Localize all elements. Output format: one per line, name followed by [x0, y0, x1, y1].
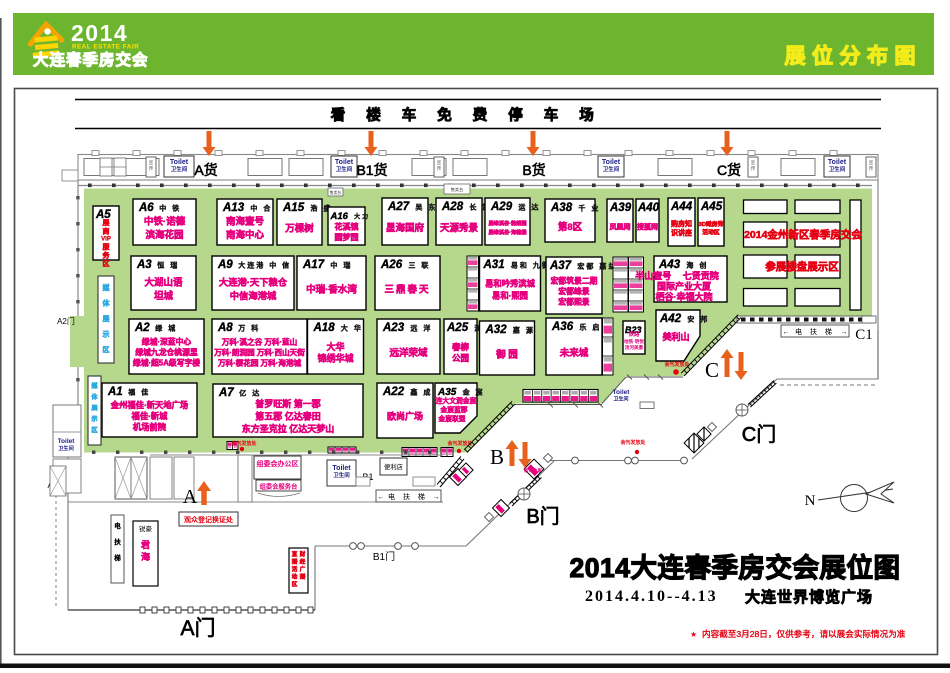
svg-text:展: 展 — [102, 218, 111, 227]
svg-text:会刊发放处: 会刊发放处 — [446, 440, 473, 447]
svg-text:卫生间: 卫生间 — [336, 165, 353, 173]
svg-text:区: 区 — [292, 580, 298, 588]
svg-text:运 达: 运 达 — [518, 203, 540, 212]
svg-text:A45: A45 — [700, 201, 723, 213]
svg-text:金宸蓝郡: 金宸蓝郡 — [439, 405, 467, 414]
svg-text:A: A — [183, 486, 198, 508]
svg-text:2014.4.10--4.13: 2014.4.10--4.13 — [585, 588, 718, 605]
svg-text:A22: A22 — [382, 386, 405, 398]
svg-text:Toilet: Toilet — [335, 159, 354, 166]
svg-text:广: 广 — [300, 565, 306, 573]
svg-text:A13: A13 — [222, 202, 245, 214]
svg-text:A1: A1 — [107, 386, 123, 398]
svg-text:金宸联盟: 金宸联盟 — [437, 414, 465, 423]
svg-text:中 合: 中 合 — [250, 204, 272, 213]
svg-text:大连港 中 信: 大连港 中 信 — [238, 261, 291, 270]
svg-text:Toilet: Toilet — [602, 159, 621, 166]
svg-text:示: 示 — [102, 331, 110, 339]
svg-text:宏都 嘉益: 宏都 嘉益 — [577, 262, 617, 271]
svg-text:万科·樱花园 万科·海港城: 万科·樱花园 万科·海港城 — [217, 358, 302, 368]
svg-text:会刊发放处: 会刊发放处 — [230, 440, 257, 447]
svg-text:→: → — [433, 494, 440, 501]
svg-text:活: 活 — [292, 565, 298, 573]
svg-text:卫生间: 卫生间 — [171, 165, 188, 173]
svg-text:南海壹号: 南海壹号 — [226, 216, 265, 228]
svg-text:B: B — [490, 445, 504, 469]
svg-text:大连春季房交会: 大连春季房交会 — [33, 50, 149, 69]
svg-text:卫生间: 卫生间 — [333, 471, 350, 479]
svg-text:2014: 2014 — [71, 20, 128, 46]
svg-text:三鼎春天: 三鼎春天 — [384, 283, 430, 295]
svg-text:A2: A2 — [134, 322, 150, 334]
svg-text:嘉 源: 嘉 源 — [512, 326, 535, 335]
svg-text:B1货: B1货 — [356, 162, 387, 178]
svg-text:A25: A25 — [446, 322, 469, 334]
svg-text:中 铁: 中 铁 — [159, 204, 181, 213]
svg-text:凤凰网: 凤凰网 — [610, 222, 631, 231]
svg-text:区: 区 — [103, 260, 110, 268]
svg-text:锦绣华城: 锦绣华城 — [317, 352, 353, 363]
svg-text:中 瑞: 中 瑞 — [330, 261, 352, 270]
svg-text:A44: A44 — [670, 201, 693, 213]
svg-text:普罗旺斯 第一郡: 普罗旺斯 第一郡 — [255, 398, 321, 409]
svg-text:绿城·超5A级写字楼: 绿城·超5A级写字楼 — [133, 358, 200, 368]
svg-text:2014大连春季房交会展位图: 2014大连春季房交会展位图 — [570, 553, 901, 583]
svg-text:绿城九龙仓桃源里: 绿城九龙仓桃源里 — [135, 347, 198, 357]
svg-text:万 科: 万 科 — [237, 324, 260, 333]
svg-text:媒: 媒 — [91, 382, 98, 390]
svg-text:N: N — [805, 493, 816, 509]
svg-text:区: 区 — [91, 426, 98, 434]
svg-text:Toilet: Toilet — [613, 389, 631, 396]
svg-text:君: 君 — [141, 540, 150, 550]
svg-text:福佳·新城: 福佳·新城 — [131, 411, 169, 421]
svg-text:A货: A货 — [194, 162, 217, 178]
svg-text:楼: 楼 — [366, 106, 381, 124]
svg-text:Toilet: Toilet — [332, 465, 351, 472]
svg-text:三 联: 三 联 — [408, 261, 430, 270]
svg-text:车: 车 — [544, 106, 559, 124]
svg-text:传: 传 — [751, 165, 756, 172]
svg-text:美利山: 美利山 — [662, 331, 689, 342]
svg-text:汤河美景: 汤河美景 — [625, 344, 644, 351]
svg-text:购房知: 购房知 — [671, 219, 692, 228]
svg-text:万科·溪之谷 万科·蓝山: 万科·溪之谷 万科·蓝山 — [221, 337, 298, 347]
svg-text:★: ★ — [690, 630, 697, 639]
svg-text:卫生间: 卫生间 — [58, 444, 74, 452]
svg-text:宏都熙景: 宏都熙景 — [558, 297, 589, 307]
svg-text:传: 传 — [869, 165, 874, 172]
svg-text:售卖台: 售卖台 — [330, 190, 342, 195]
svg-text:A36: A36 — [551, 321, 574, 333]
svg-text:便利店: 便利店 — [384, 462, 403, 471]
svg-text:会刊发放处: 会刊发放处 — [663, 361, 690, 368]
svg-text:宏都峰景: 宏都峰景 — [558, 286, 589, 296]
svg-text:宣: 宣 — [869, 159, 874, 166]
svg-text:A6: A6 — [138, 202, 154, 214]
svg-text:金 宸: 金 宸 — [462, 388, 485, 397]
svg-text:中铁·诺德: 中铁·诺德 — [144, 216, 186, 228]
svg-text:财: 财 — [300, 550, 306, 558]
svg-text:A17: A17 — [302, 259, 325, 271]
svg-text:参展楼盘展示区: 参展楼盘展示区 — [765, 260, 839, 273]
svg-text:吴 东: 吴 东 — [415, 203, 437, 212]
svg-text:卫生间: 卫生间 — [829, 165, 846, 173]
svg-text:活动区: 活动区 — [702, 228, 720, 236]
svg-text:坦城: 坦城 — [154, 290, 174, 302]
svg-text:搜狐网: 搜狐网 — [637, 222, 658, 231]
svg-text:鑫 成: 鑫 成 — [409, 388, 432, 397]
svg-text:A门: A门 — [180, 617, 215, 640]
svg-text:A16: A16 — [330, 211, 349, 222]
svg-text:地铁·明悦: 地铁·明悦 — [624, 338, 644, 345]
svg-text:A7: A7 — [218, 387, 234, 399]
svg-text:千 业: 千 业 — [578, 204, 600, 213]
svg-text:扶: 扶 — [114, 537, 121, 546]
svg-text:展位分布图: 展位分布图 — [785, 44, 923, 68]
svg-text:大 华: 大 华 — [341, 324, 363, 333]
svg-text:春柳: 春柳 — [451, 342, 470, 352]
svg-text:播: 播 — [300, 573, 306, 581]
svg-text:车: 车 — [402, 106, 417, 124]
svg-text:梯: 梯 — [114, 553, 121, 562]
svg-text:滨海花园: 滨海花园 — [145, 229, 183, 241]
svg-text:电: 电 — [114, 521, 121, 530]
svg-text:宣: 宣 — [437, 159, 442, 166]
svg-text:播: 播 — [292, 558, 298, 566]
svg-text:A26: A26 — [380, 259, 403, 271]
svg-text:金州福佳·新天地广场: 金州福佳·新天地广场 — [110, 400, 188, 410]
svg-text:天源秀景: 天源秀景 — [440, 222, 479, 234]
svg-text:2014金州新区春季房交会: 2014金州新区春季房交会 — [744, 228, 862, 241]
svg-text:中信海港城: 中信海港城 — [230, 290, 277, 301]
svg-text:Toilet: Toilet — [170, 159, 189, 166]
svg-text:商: 商 — [103, 227, 110, 236]
svg-text:识讲座: 识讲座 — [671, 228, 692, 237]
svg-text:宏都筑景二期: 宏都筑景二期 — [551, 276, 598, 286]
svg-text:A37: A37 — [549, 260, 572, 272]
svg-text:C门: C门 — [742, 423, 776, 446]
svg-text:公园: 公园 — [452, 353, 469, 363]
svg-text:C货: C货 — [717, 162, 741, 178]
svg-text:C: C — [705, 358, 719, 382]
svg-text:绿城·深蓝中心: 绿城·深蓝中心 — [142, 337, 192, 347]
svg-text:万棵树: 万棵树 — [284, 222, 314, 234]
svg-text:组委会服务台: 组委会服务台 — [260, 482, 298, 491]
svg-text:←: ← — [783, 329, 790, 336]
svg-text:国际产业大厦: 国际产业大厦 — [657, 281, 712, 292]
svg-text:海 创: 海 创 — [686, 261, 708, 270]
svg-text:易和 九衡: 易和 九衡 — [511, 261, 551, 270]
svg-text:场: 场 — [579, 107, 594, 124]
svg-text:A18: A18 — [313, 322, 336, 334]
svg-text:B货: B货 — [522, 162, 545, 178]
svg-text:第五郡 亿达春田: 第五郡 亿达春田 — [255, 411, 321, 422]
svg-text:服: 服 — [103, 242, 111, 251]
svg-text:A23: A23 — [382, 322, 405, 334]
svg-text:停: 停 — [508, 106, 523, 124]
svg-text:展: 展 — [102, 314, 111, 323]
svg-text:传: 传 — [437, 165, 442, 172]
svg-text:绿 城: 绿 城 — [155, 324, 177, 333]
svg-text:海: 海 — [141, 551, 150, 562]
svg-text:展: 展 — [91, 404, 98, 412]
svg-text:电 扶 梯: 电 扶 梯 — [795, 327, 835, 336]
svg-text:看: 看 — [331, 107, 346, 124]
svg-text:B门: B门 — [526, 505, 559, 528]
svg-text:组委会办公区: 组委会办公区 — [257, 459, 299, 468]
svg-text:远洋荣域: 远洋荣域 — [389, 347, 428, 359]
svg-text:中瑞·香水湾: 中瑞·香水湾 — [306, 283, 357, 295]
svg-text:连大文润金宸: 连大文润金宸 — [436, 396, 477, 405]
svg-text:A32: A32 — [485, 324, 508, 336]
svg-text:A9: A9 — [217, 259, 233, 271]
svg-text:区: 区 — [103, 346, 110, 354]
svg-text:A28: A28 — [441, 201, 464, 213]
svg-text:A29: A29 — [490, 201, 513, 213]
svg-text:未来城: 未来城 — [559, 347, 589, 359]
svg-text:→: → — [841, 329, 848, 336]
svg-text:A40: A40 — [637, 202, 660, 214]
svg-text:内容截至3月28日，仅供参考，请以展会实际情况为准: 内容截至3月28日，仅供参考，请以展会实际情况为准 — [702, 628, 906, 639]
svg-text:费: 费 — [473, 106, 488, 124]
svg-text:大连世界博览广场: 大连世界博览广场 — [745, 588, 873, 606]
svg-text:经: 经 — [300, 558, 306, 566]
svg-text:A27: A27 — [387, 201, 410, 213]
svg-text:VIP: VIP — [101, 237, 111, 243]
svg-text:Toilet: Toilet — [58, 438, 76, 445]
svg-text:远 洋: 远 洋 — [410, 324, 432, 333]
svg-text:C1: C1 — [855, 327, 873, 343]
svg-text:新车之家: 新车之家 — [524, 467, 542, 474]
svg-text:机场前院: 机场前院 — [133, 422, 167, 432]
svg-text:电 扶 梯: 电 扶 梯 — [388, 492, 428, 501]
svg-text:示: 示 — [90, 416, 97, 423]
svg-text:A35: A35 — [437, 387, 457, 398]
svg-text:御 园: 御 园 — [495, 348, 518, 360]
svg-text:易和吟秀滨城: 易和吟秀滨城 — [485, 278, 535, 288]
svg-text:福 佳: 福 佳 — [127, 388, 150, 397]
svg-text:A38: A38 — [550, 202, 573, 214]
svg-text:宣: 宣 — [751, 159, 756, 166]
svg-text:A42: A42 — [659, 313, 682, 325]
svg-text:务: 务 — [103, 251, 111, 260]
svg-text:免: 免 — [437, 106, 452, 124]
svg-text:A8: A8 — [217, 322, 233, 334]
svg-text:宣: 宣 — [149, 159, 154, 166]
svg-text:花溪镇: 花溪镇 — [335, 222, 359, 232]
svg-text:A3: A3 — [136, 259, 152, 271]
svg-text:欧尚广场: 欧尚广场 — [387, 411, 423, 422]
svg-text:媒: 媒 — [102, 283, 111, 292]
svg-text:半山壹号 七贤贡院: 半山壹号 七贤贡院 — [635, 270, 719, 281]
svg-text:大连港·天下粮仓: 大连港·天下粮仓 — [219, 277, 288, 288]
svg-text:A15: A15 — [282, 202, 305, 214]
svg-text:东方圣克拉 亿达天梦山: 东方圣克拉 亿达天梦山 — [242, 423, 335, 434]
svg-text:REAL ESTATE FAIR: REAL ESTATE FAIR — [72, 44, 139, 51]
svg-text:安 邦: 安 邦 — [687, 315, 709, 324]
svg-text:直: 直 — [292, 550, 298, 558]
svg-text:B1门: B1门 — [373, 550, 395, 563]
svg-text:大湖山语: 大湖山语 — [144, 277, 183, 289]
svg-text:第8区: 第8区 — [558, 221, 583, 233]
svg-text:大华: 大华 — [326, 341, 344, 352]
svg-text:A43: A43 — [658, 259, 681, 271]
svg-text:卫生间: 卫生间 — [613, 396, 628, 403]
svg-text:动: 动 — [292, 573, 298, 581]
svg-text:易和·熙园: 易和·熙园 — [492, 290, 528, 300]
svg-text:锐豪: 锐豪 — [139, 524, 153, 533]
svg-text:大力: 大力 — [354, 213, 370, 221]
svg-text:会刊发放处: 会刊发放处 — [619, 439, 646, 446]
svg-text:亿 达: 亿 达 — [239, 389, 261, 398]
svg-text:圆梦园: 圆梦园 — [335, 232, 359, 242]
svg-text:栖谷·幸福大院: 栖谷·幸福大院 — [656, 291, 713, 302]
svg-text:←: ← — [378, 494, 385, 501]
svg-text:卫生间: 卫生间 — [603, 165, 620, 173]
svg-text:Toilet: Toilet — [828, 159, 847, 166]
svg-text:A2门: A2门 — [57, 316, 75, 326]
svg-text:乐 启: 乐 启 — [579, 323, 601, 332]
svg-text:体: 体 — [91, 393, 98, 401]
svg-text:星海国府: 星海国府 — [386, 222, 425, 234]
svg-text:A39: A39 — [609, 202, 632, 214]
svg-text:南海中心: 南海中心 — [226, 229, 265, 241]
svg-text:A31: A31 — [483, 259, 505, 271]
svg-text:传: 传 — [149, 165, 154, 172]
svg-text:恒 瑞: 恒 瑞 — [156, 261, 179, 270]
svg-text:铁路: 铁路 — [628, 330, 640, 338]
svg-text:体: 体 — [103, 299, 111, 308]
svg-text:居维溪谷·勃朗园: 居维溪谷·勃朗园 — [488, 219, 526, 227]
svg-text:3D瞰房秀: 3D瞰房秀 — [699, 220, 724, 228]
svg-text:万科·朗润园 万科·西山天街: 万科·朗润园 万科·西山天街 — [213, 347, 305, 357]
svg-text:观众登记换证处: 观众登记换证处 — [184, 515, 234, 524]
svg-text:售卖台: 售卖台 — [451, 186, 464, 193]
svg-text:居维溪谷·海德堡: 居维溪谷·海德堡 — [488, 228, 527, 236]
